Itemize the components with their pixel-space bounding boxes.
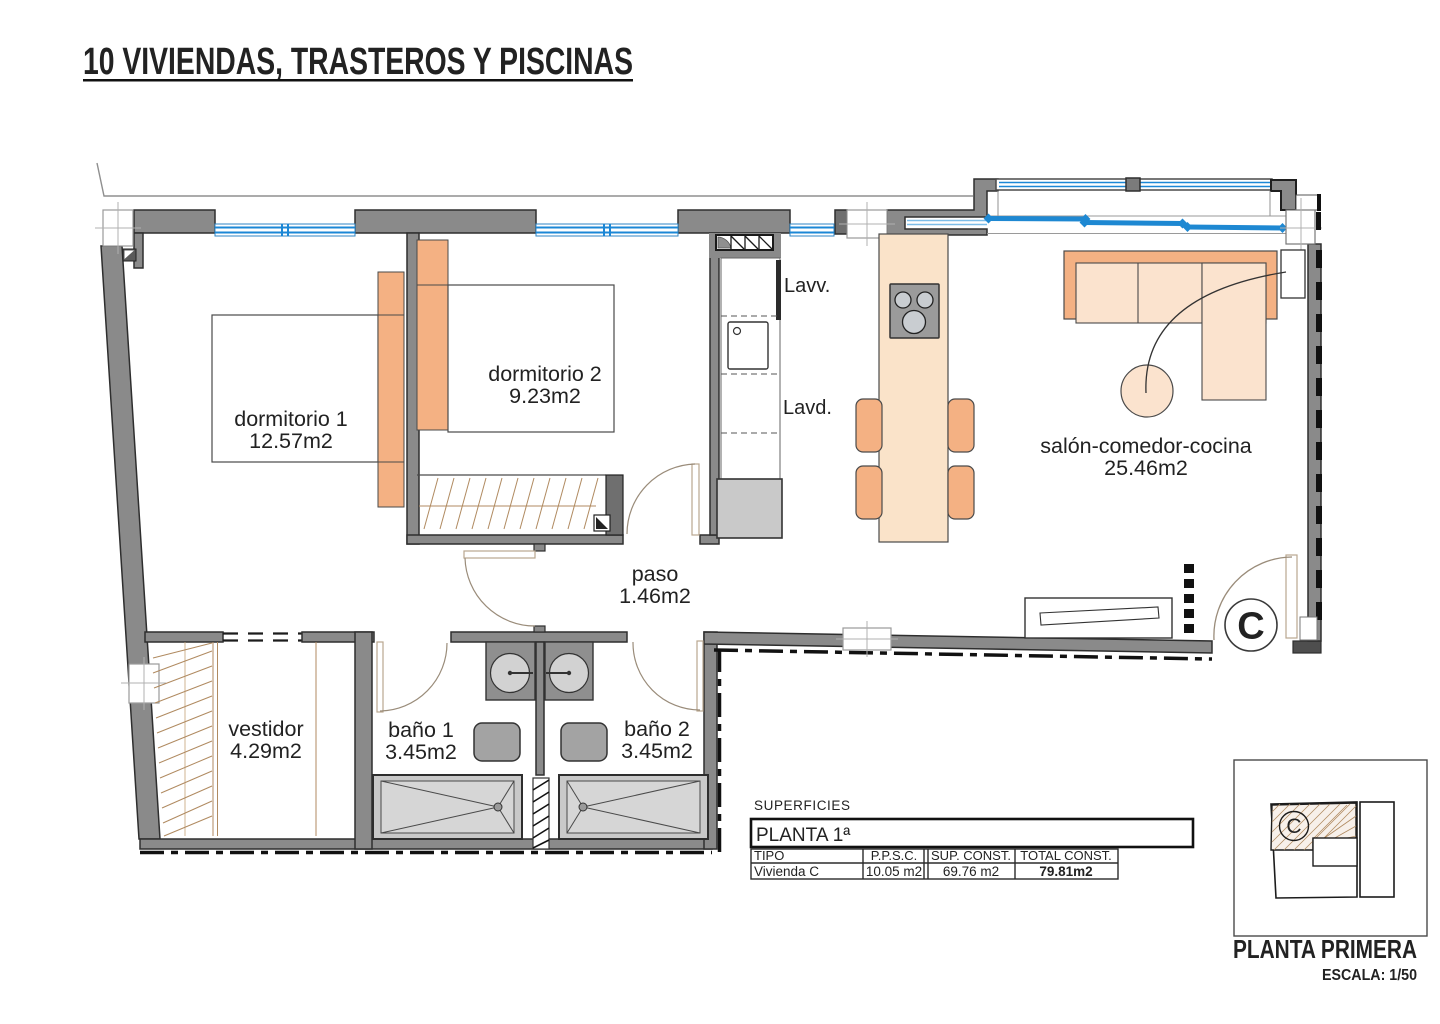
svg-text:PLANTA 1ª: PLANTA 1ª xyxy=(756,825,851,846)
svg-text:C: C xyxy=(1286,815,1301,838)
svg-text:TIPO: TIPO xyxy=(754,848,784,863)
svg-text:3.45m2: 3.45m2 xyxy=(621,739,693,763)
svg-text:10 VIVIENDAS, TRASTEROS Y PISC: 10 VIVIENDAS, TRASTEROS Y PISCINAS xyxy=(83,41,633,83)
svg-text:P.P.S.C.: P.P.S.C. xyxy=(871,848,918,863)
svg-text:paso: paso xyxy=(632,562,679,586)
svg-text:vestidor: vestidor xyxy=(228,717,303,741)
svg-text:SUP. CONST.: SUP. CONST. xyxy=(931,848,1011,863)
svg-text:Lavd.: Lavd. xyxy=(783,397,832,419)
svg-text:9.23m2: 9.23m2 xyxy=(509,384,581,408)
svg-text:10.05 m2: 10.05 m2 xyxy=(866,864,922,879)
svg-text:TOTAL CONST.: TOTAL CONST. xyxy=(1020,848,1112,863)
svg-text:baño 2: baño 2 xyxy=(624,717,690,741)
svg-text:1.46m2: 1.46m2 xyxy=(619,584,691,608)
svg-text:69.76 m2: 69.76 m2 xyxy=(943,864,999,879)
svg-text:79.81m2: 79.81m2 xyxy=(1039,864,1092,879)
svg-text:SUPERFICIES: SUPERFICIES xyxy=(754,798,851,813)
svg-text:C: C xyxy=(1237,606,1264,648)
svg-text:25.46m2: 25.46m2 xyxy=(1104,456,1188,480)
svg-text:Vivienda C: Vivienda C xyxy=(754,864,819,879)
svg-text:dormitorio 1: dormitorio 1 xyxy=(234,407,348,431)
svg-text:Lavv.: Lavv. xyxy=(784,275,830,297)
svg-text:4.29m2: 4.29m2 xyxy=(230,739,302,763)
svg-text:3.45m2: 3.45m2 xyxy=(385,740,457,764)
svg-text:12.57m2: 12.57m2 xyxy=(249,429,333,453)
svg-text:ESCALA: 1/50: ESCALA: 1/50 xyxy=(1322,967,1417,984)
svg-text:dormitorio 2: dormitorio 2 xyxy=(488,362,602,386)
svg-text:salón-comedor-cocina: salón-comedor-cocina xyxy=(1040,434,1252,458)
svg-text:baño 1: baño 1 xyxy=(388,718,454,742)
svg-text:PLANTA PRIMERA: PLANTA PRIMERA xyxy=(1233,934,1417,964)
